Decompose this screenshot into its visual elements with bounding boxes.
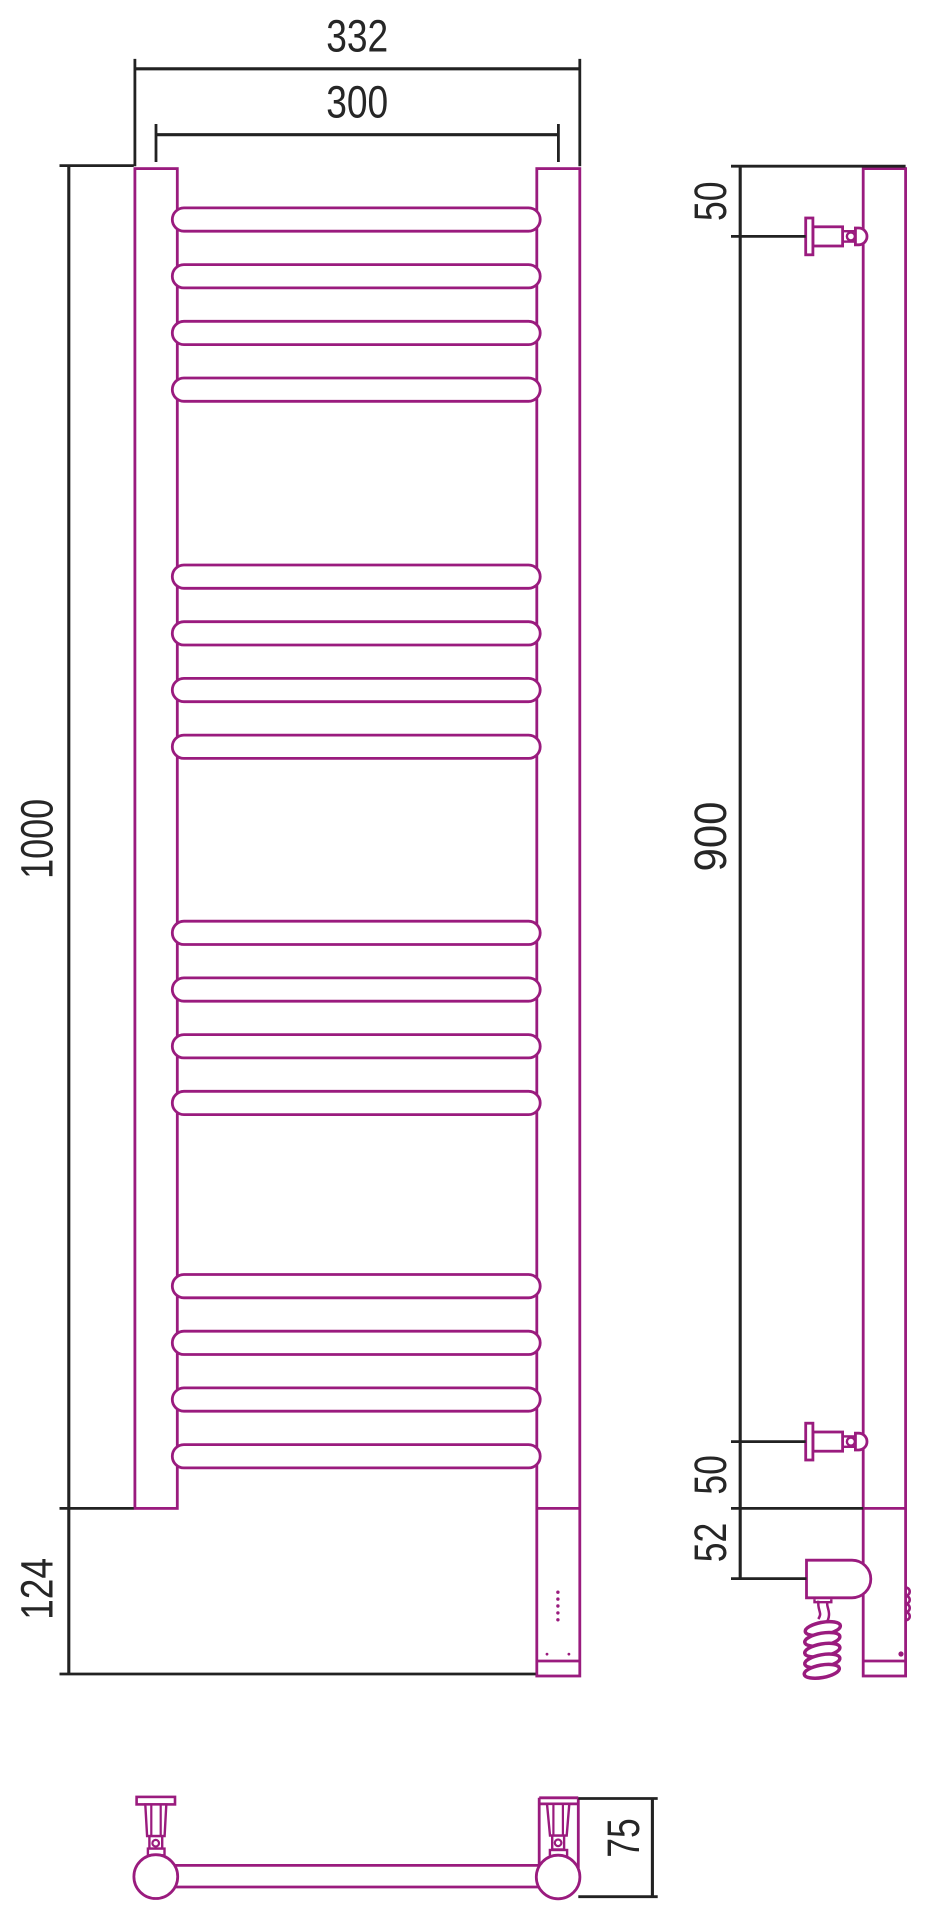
svg-text:75: 75 — [598, 1818, 649, 1858]
svg-text:332: 332 — [326, 11, 388, 62]
svg-text:900: 900 — [685, 802, 736, 872]
svg-text:1000: 1000 — [12, 799, 63, 879]
svg-text:50: 50 — [685, 181, 736, 221]
svg-text:124: 124 — [12, 1558, 63, 1620]
svg-text:52: 52 — [685, 1523, 736, 1563]
svg-text:300: 300 — [326, 76, 388, 127]
svg-text:50: 50 — [685, 1455, 736, 1495]
